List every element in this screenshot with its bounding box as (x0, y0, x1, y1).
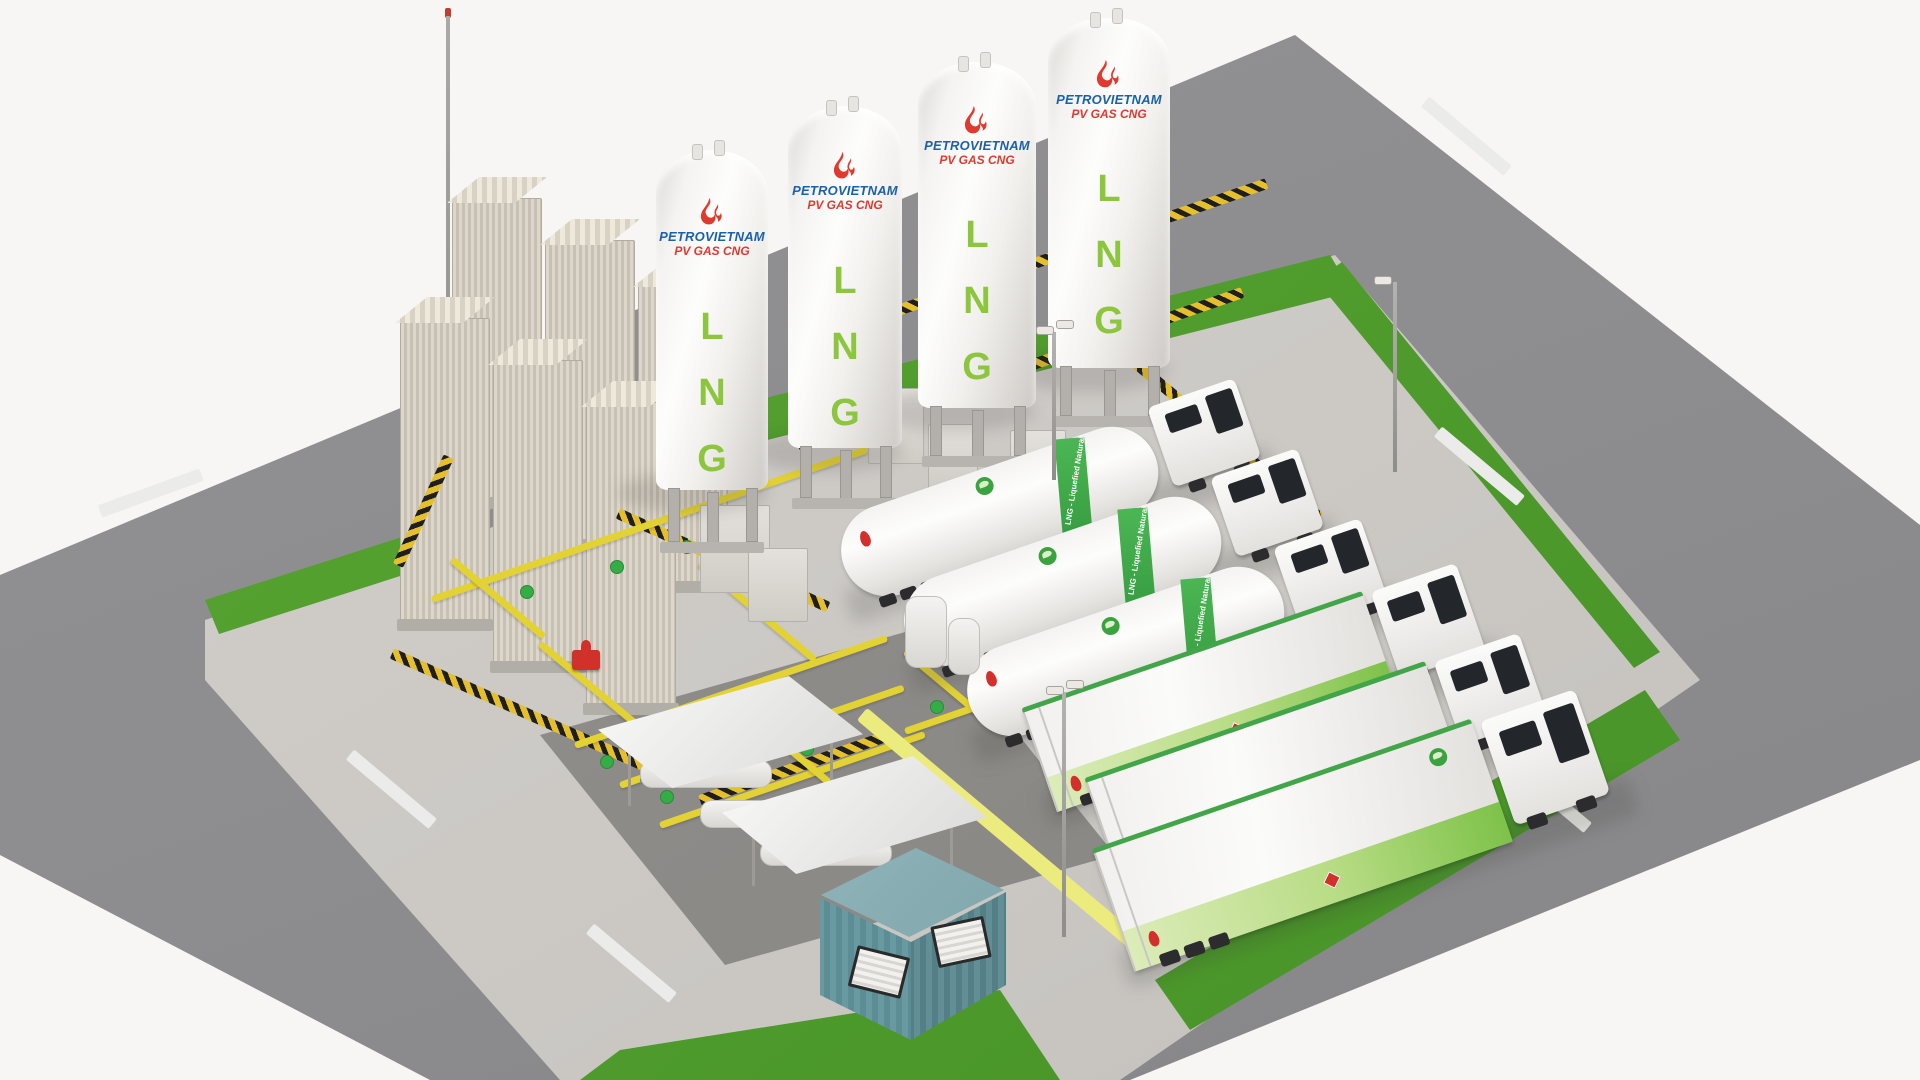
division-name: PV GAS CNG (1048, 107, 1170, 121)
green-valve (930, 700, 944, 714)
street-light-lamp (1066, 680, 1084, 689)
leaf-logo-icon (973, 475, 996, 498)
street-light-pole (1393, 282, 1397, 472)
vaporizer-top (540, 219, 640, 245)
street-light-pole (1062, 692, 1066, 937)
tank-leg (880, 446, 892, 498)
equipment-container (818, 843, 1013, 1048)
vaporizer-column (493, 360, 583, 664)
tank-leg (800, 446, 812, 498)
flame-mark-icon (984, 670, 999, 688)
tank-foundation (660, 542, 764, 553)
division-name: PV GAS CNG (918, 153, 1036, 167)
tank-nozzle (1112, 8, 1123, 24)
leaf-logo-icon (1099, 615, 1122, 638)
green-valve (600, 755, 614, 769)
tank-leg (930, 406, 942, 456)
leaf-logo-icon (1427, 746, 1450, 769)
side-window (1498, 720, 1542, 757)
green-valve (520, 585, 534, 599)
fire-pump (572, 650, 600, 670)
lng-storage-tank: PETROVIETNAM PV GAS CNG L N G (1048, 18, 1170, 368)
lng-storage-tank: PETROVIETNAM PV GAS CNG L N G (788, 106, 902, 448)
petrovietnam-flame-icon (833, 150, 858, 183)
lng-storage-tank: PETROVIETNAM PV GAS CNG L N G (656, 150, 768, 490)
windshield (1267, 457, 1306, 504)
vertical-vessel (905, 596, 947, 668)
petrovietnam-logo: PETROVIETNAM PV GAS CNG (918, 104, 1036, 167)
windshield (1427, 574, 1468, 625)
side-window (1386, 590, 1425, 622)
petrovietnam-logo: PETROVIETNAM PV GAS CNG (788, 150, 902, 212)
tank-nozzle (826, 100, 837, 116)
lng-label: L N G (788, 248, 902, 446)
green-valve (610, 560, 624, 574)
tank-nozzle (714, 140, 725, 156)
company-name: PETROVIETNAM (918, 138, 1036, 153)
tanker-green-band: LNG - Liquefied Natural Gas (1054, 437, 1092, 535)
petrovietnam-flame-icon (964, 104, 990, 138)
street-light-lamp (1046, 686, 1064, 695)
street-light-lamp (1374, 276, 1392, 285)
company-name: PETROVIETNAM (1048, 92, 1170, 107)
tank-nozzle (958, 56, 969, 72)
street-light-lamp (1036, 326, 1054, 335)
windshield (1542, 702, 1590, 763)
tank-leg (1060, 366, 1072, 416)
windshield (1204, 387, 1243, 434)
side-window (1164, 404, 1203, 434)
street-light-lamp (1056, 320, 1074, 329)
lng-label: L N G (656, 294, 768, 492)
windshield (1490, 644, 1531, 695)
tanker-green-band: LNG - Liquefied Natural Gas (1117, 507, 1155, 605)
company-name: PETROVIETNAM (788, 183, 902, 198)
tank-nozzle (1090, 12, 1101, 28)
petrovietnam-flame-icon (1096, 58, 1122, 92)
tank-leg (746, 488, 758, 542)
flame-mark-icon (858, 530, 873, 548)
tank-leg (1014, 406, 1026, 456)
petrovietnam-logo: PETROVIETNAM PV GAS CNG (656, 196, 768, 258)
vertical-vessel (948, 618, 980, 675)
tank-leg (668, 488, 680, 542)
street-light-pole (1052, 332, 1056, 480)
vaporizer-base (397, 619, 493, 631)
division-name: PV GAS CNG (656, 244, 768, 258)
windshield (1330, 527, 1369, 574)
lng-station-render: PETROVIETNAM PV GAS CNG L N G PETROVIETN… (0, 0, 1920, 1080)
tank-nozzle (692, 144, 703, 160)
lng-storage-tank: PETROVIETNAM PV GAS CNG L N G (918, 62, 1036, 408)
equipment-cabinet (748, 548, 808, 622)
lng-label: L N G (918, 202, 1036, 400)
vaporizer-top (447, 177, 547, 203)
side-window (1227, 474, 1266, 504)
company-name: PETROVIETNAM (656, 229, 768, 244)
petrovietnam-logo: PETROVIETNAM PV GAS CNG (1048, 58, 1170, 121)
leaf-logo-icon (1036, 545, 1059, 568)
side-window (1449, 660, 1488, 692)
tank-nozzle (980, 52, 991, 68)
tank-nozzle (848, 96, 859, 112)
petrovietnam-flame-icon (700, 196, 725, 229)
division-name: PV GAS CNG (788, 198, 902, 212)
side-window (1290, 544, 1329, 574)
green-valve (660, 790, 674, 804)
